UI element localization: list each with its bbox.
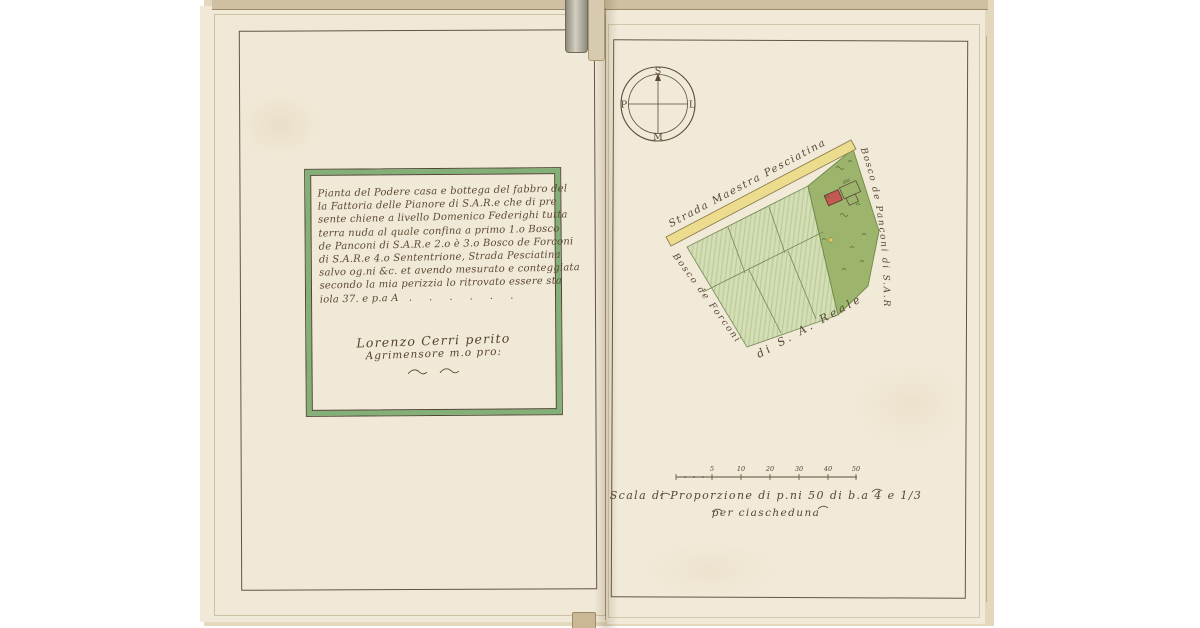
svg-text:10: 10 (737, 465, 745, 473)
scale-tick-labels: 5 10 20 30 40 50 (710, 465, 860, 473)
svg-text:40: 40 (823, 465, 832, 473)
svg-text:5: 5 (710, 465, 714, 473)
compass-letter-west: P (621, 100, 628, 111)
svg-text:20: 20 (765, 465, 774, 473)
svg-text:30: 30 (795, 465, 803, 473)
compass-letter-north: S (655, 66, 662, 77)
compass-letter-south: M (653, 132, 663, 143)
book-clasp-top-tab (588, 0, 605, 61)
svg-text:50: 50 (852, 465, 860, 473)
scale-caption-line2: per ciascheduna (712, 507, 821, 519)
well-mark (829, 238, 834, 243)
compass-letter-east: L (689, 100, 696, 111)
scale-caption-line1: Scala di Proporzione di p.ni 50 di b.a 4… (610, 489, 923, 502)
book-clasp-top (565, 0, 588, 53)
compass-rose (621, 67, 695, 141)
manuscript-scan: Pianta del Podere casa e bottega del fab… (0, 0, 1200, 628)
book-fold-line (605, 8, 606, 620)
scale-bar: 5 10 20 30 40 50 Scala di Proporzione di… (610, 465, 923, 519)
book-clasp-bottom (572, 612, 596, 628)
estate-plot: aia Strada Maestra Pesciatina Bosco de P… (0, 0, 891, 361)
book-fold (594, 0, 618, 628)
